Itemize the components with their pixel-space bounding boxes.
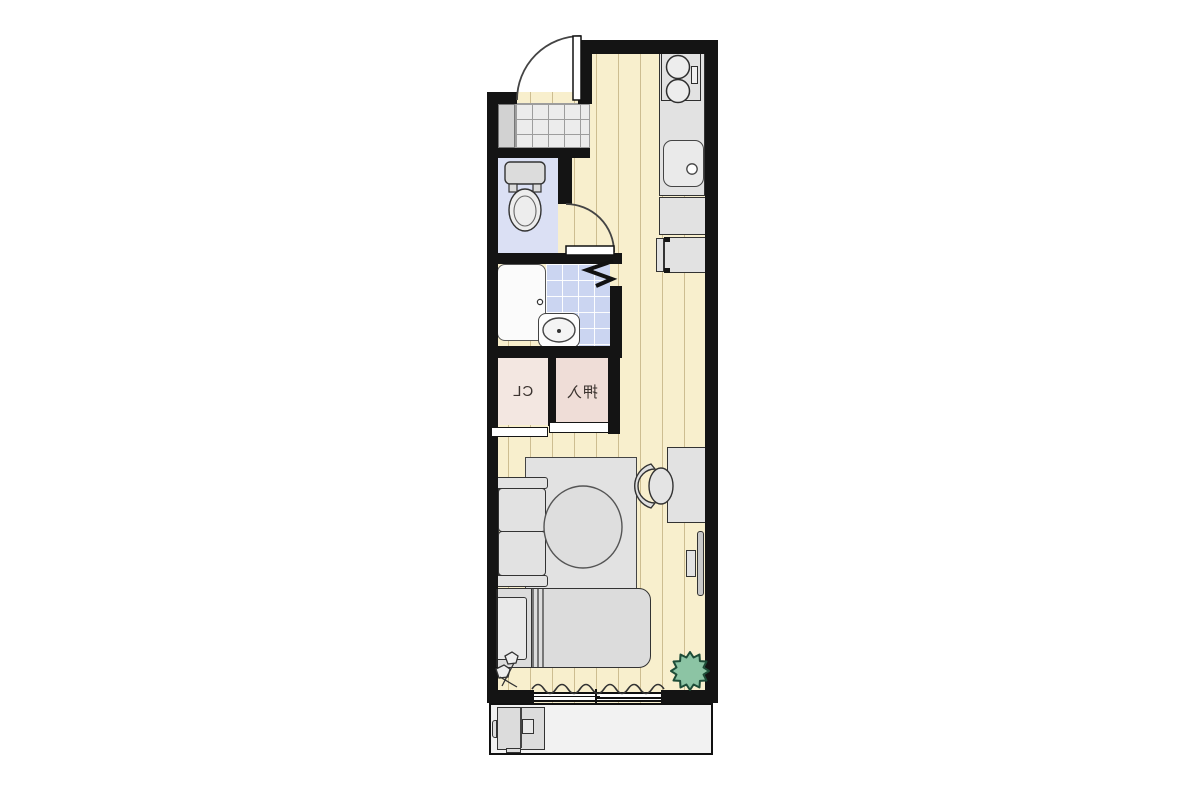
desk	[667, 447, 706, 523]
wall-top	[578, 40, 718, 54]
kitchen-sink	[663, 140, 704, 187]
wall-bath-bottom	[487, 346, 622, 358]
sliding-door-cl	[491, 427, 548, 437]
bed-pillow	[495, 597, 527, 660]
sofa-armrest-bottom	[490, 575, 548, 587]
genkan-tile-floor	[515, 103, 590, 148]
wall-closet-right	[608, 346, 620, 434]
window-pane-left	[534, 696, 600, 698]
wall-closet-divider	[548, 358, 556, 426]
refrigerator	[664, 237, 707, 273]
tv-stand	[686, 550, 696, 577]
wall-bottom-right	[661, 690, 718, 703]
sliding-door-oshiire	[549, 422, 609, 433]
bed-mattress	[531, 588, 651, 668]
wall-genkan-stub	[578, 43, 592, 104]
window-pane-right	[596, 697, 661, 699]
refrigerator-door	[656, 238, 664, 272]
washing-machine-foot	[506, 748, 521, 753]
wall-left	[487, 92, 498, 703]
closet-cl: CL	[498, 358, 548, 425]
entrance-outside-area	[487, 26, 578, 92]
tv	[697, 531, 704, 596]
wall-toilet-top	[487, 148, 590, 158]
refrigerator-hinge-bottom	[664, 268, 670, 273]
wall-entry-stub	[487, 92, 517, 104]
sofa-cushion-1	[498, 488, 546, 532]
washing-machine-knob	[492, 720, 497, 738]
sofa-cushion-2	[498, 531, 546, 576]
closet-oshiire-label: 押入	[566, 381, 598, 402]
kitchen-cabinet	[659, 197, 706, 235]
wall-bottom-left	[487, 690, 534, 703]
washing-machine	[497, 707, 545, 750]
closet-oshiire: 押入	[556, 358, 608, 425]
floor-plan: CL 押入	[0, 0, 1200, 800]
wall-toilet-right	[558, 148, 572, 204]
wall-bath-top	[487, 253, 622, 264]
washing-machine-panel	[522, 719, 534, 734]
washbasin	[538, 313, 580, 348]
wall-right	[705, 40, 718, 703]
refrigerator-hinge-top	[664, 237, 670, 242]
balcony-window	[534, 692, 661, 702]
shoe-cabinet	[498, 104, 515, 148]
stove-grill	[691, 66, 698, 84]
toilet-room	[498, 158, 558, 253]
closet-cl-label: CL	[512, 383, 533, 400]
